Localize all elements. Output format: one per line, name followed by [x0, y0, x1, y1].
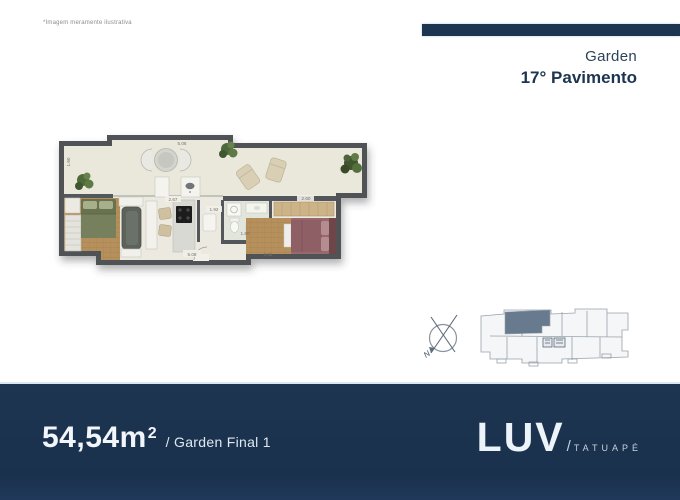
dim-hall: 1.92 [210, 207, 219, 212]
brand-slash: / [567, 438, 571, 455]
dim-living-bottom: 5.08 [188, 252, 197, 257]
brand-name: LUV [477, 414, 565, 460]
terrace-dining-set [141, 149, 191, 172]
hall-vanity [203, 214, 216, 231]
accent-bar [422, 24, 680, 36]
dim-kitchen: 2.67 [169, 197, 178, 202]
bedroom1-wardrobe [65, 215, 81, 251]
brochure-page: *Imagem meramente ilustrativa Garden 17°… [0, 0, 680, 500]
dim-bedroom: 2.60 [302, 196, 311, 201]
plan-heading: Garden 17° Pavimento [521, 48, 637, 88]
floorplan-body: 5.06 1.60 2.67 1.92 1.80 2.60 5.08 3.45 [59, 135, 367, 265]
building-core [543, 338, 565, 347]
compass-icon: N [422, 315, 457, 360]
building-keyplan [481, 309, 628, 366]
program-name: Garden [521, 48, 637, 65]
terrace-floor [64, 140, 362, 195]
bedroom1-bed [81, 199, 116, 238]
brand-location: TATUAPÉ [574, 443, 642, 453]
wall [197, 200, 200, 242]
floor-label: 17° Pavimento [521, 68, 637, 88]
brand-logo: LUV/TATUAPÉ [477, 414, 642, 461]
image-disclaimer: *Imagem meramente ilustrativa [43, 20, 132, 26]
dim-bedroom-bottom: 3.45 [264, 252, 273, 257]
area-exponent: 2 [148, 425, 157, 442]
keyplan-section: N [412, 296, 642, 376]
floorplan-drawing: 5.06 1.60 2.67 1.92 1.80 2.60 5.08 3.45 [40, 120, 390, 295]
unit-name: / Garden Final 1 [166, 434, 271, 450]
wall [223, 196, 336, 201]
dim-bathroom: 1.80 [241, 231, 250, 236]
dim-terrace-depth: 1.60 [66, 157, 71, 166]
dim-terrace-width: 5.06 [178, 141, 187, 146]
area-value: 54,54m [42, 421, 147, 454]
wall [64, 194, 113, 198]
unit-area-line: 54,54m2/ Garden Final 1 [42, 421, 271, 455]
bedroom1-shelf [65, 198, 80, 213]
